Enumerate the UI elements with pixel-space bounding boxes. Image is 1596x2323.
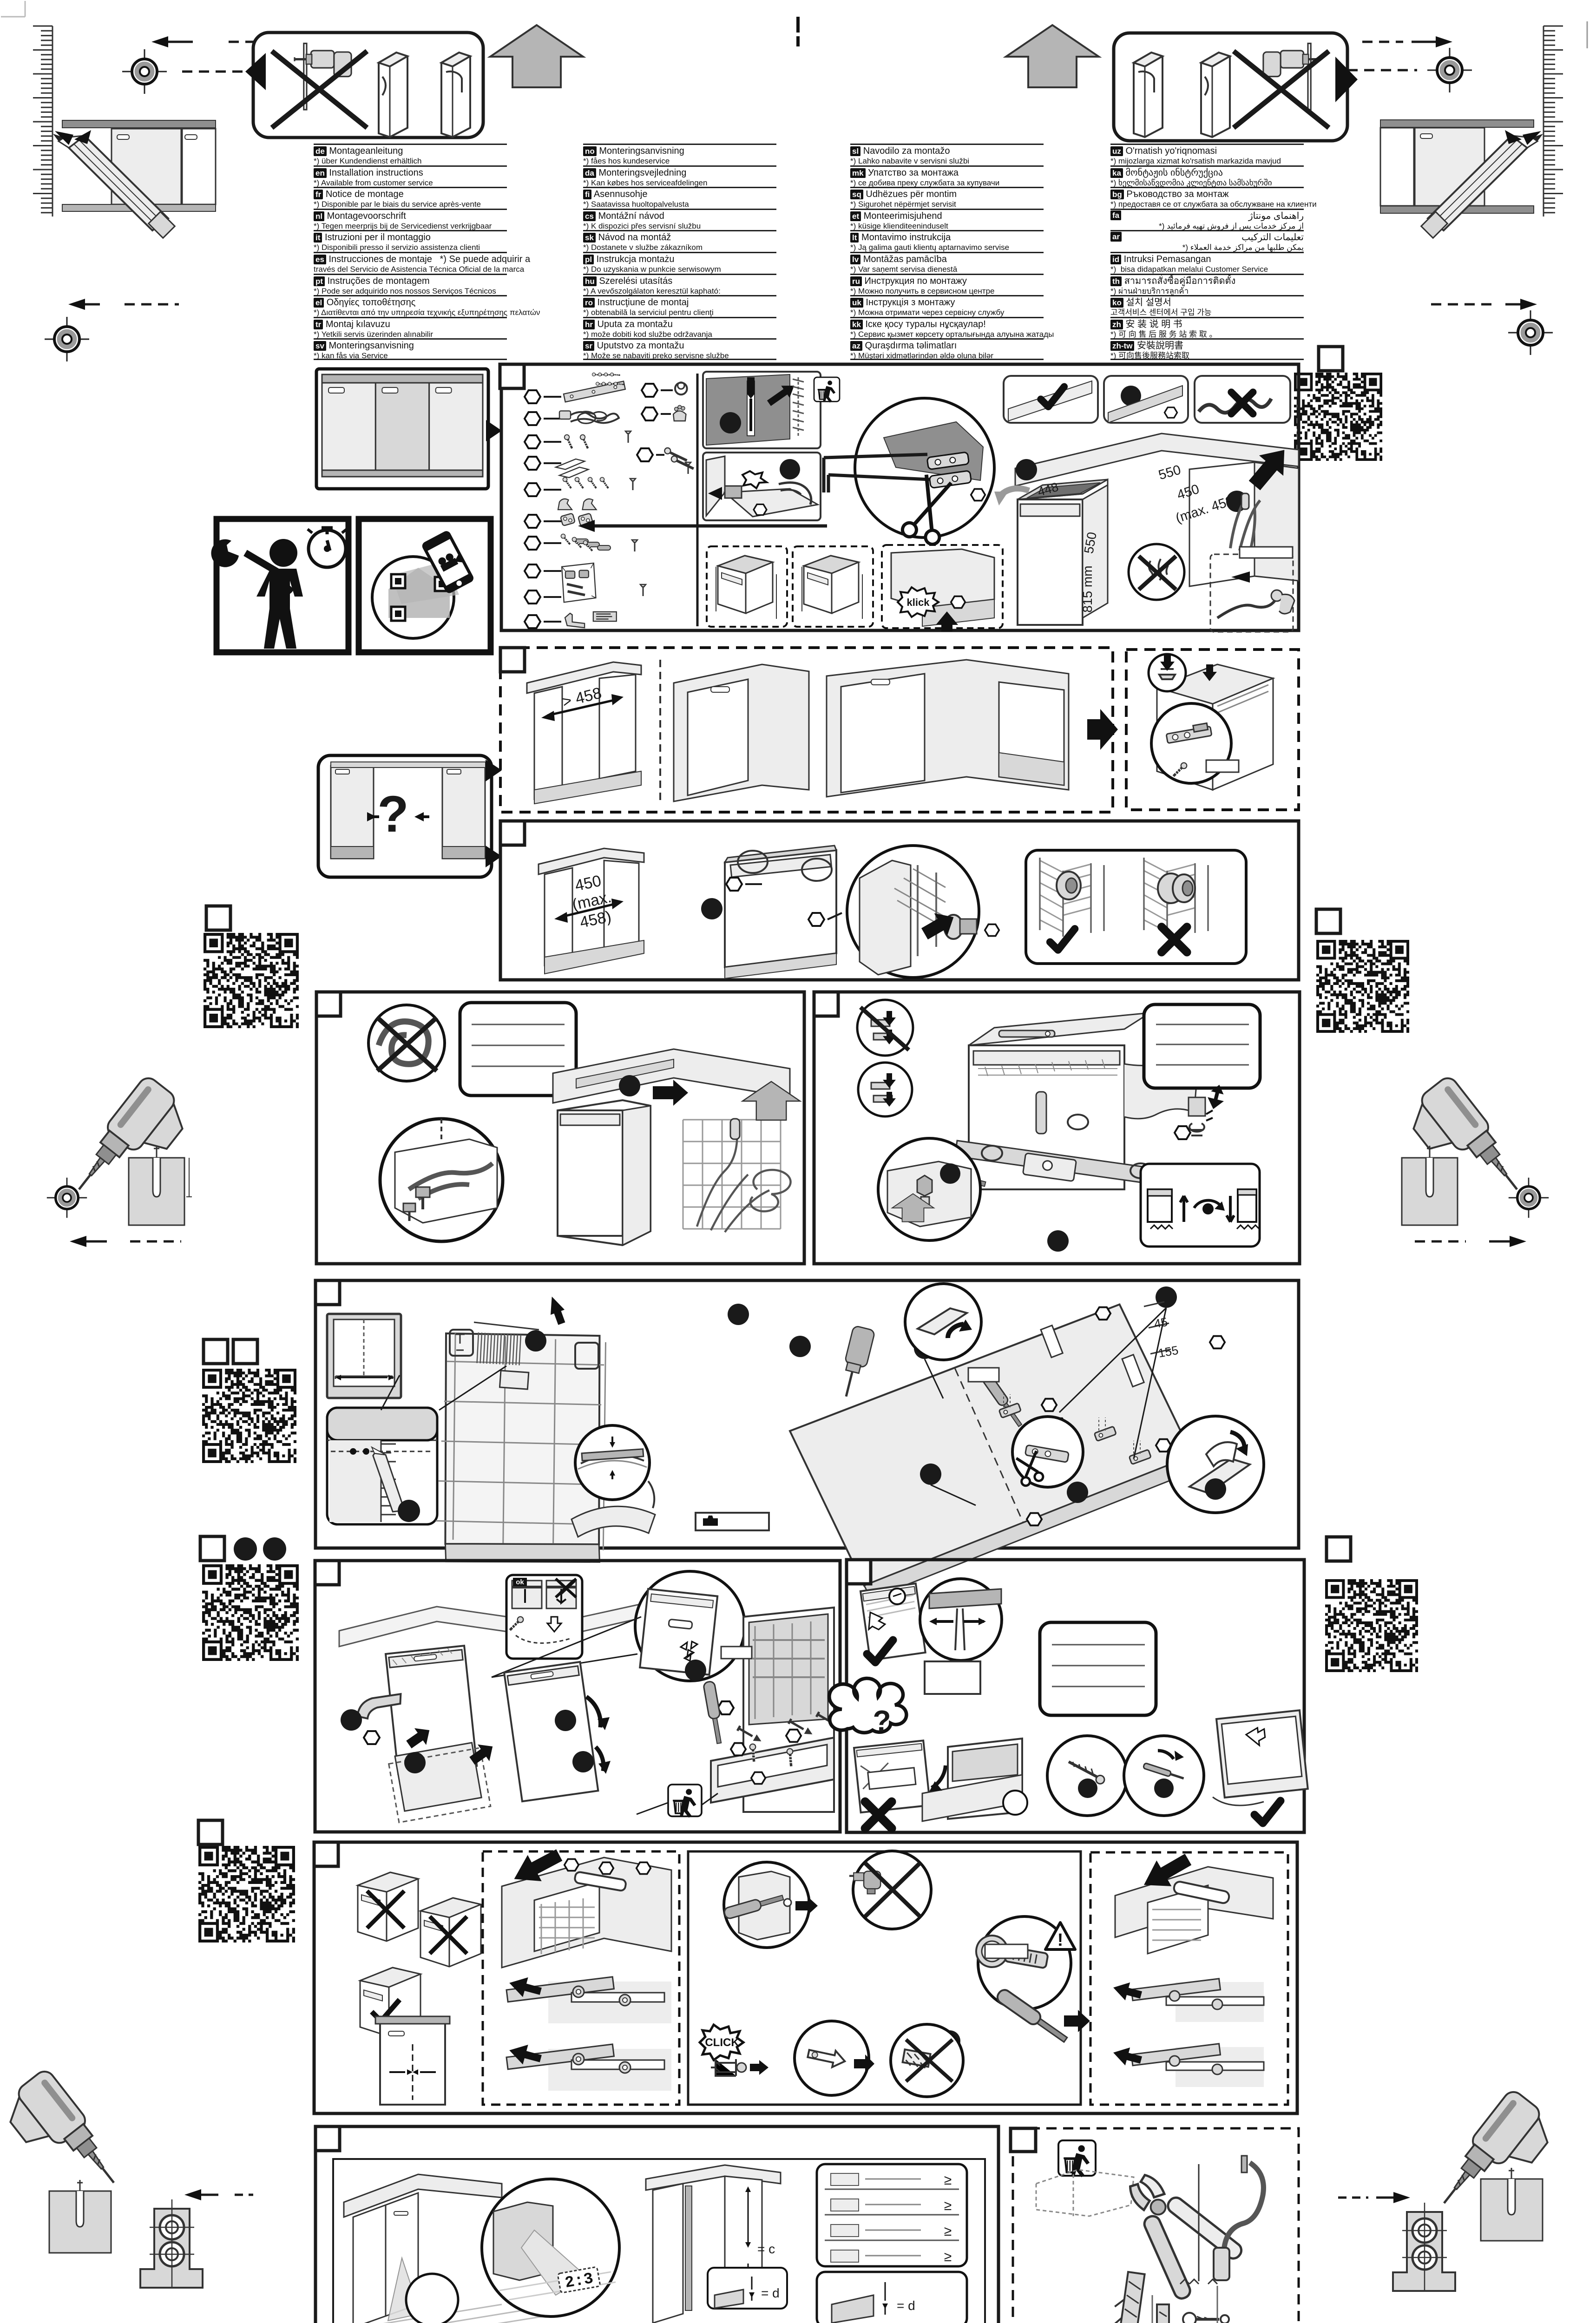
svg-text:= d: = d	[897, 2298, 915, 2313]
svg-text:ok: ok	[516, 1578, 524, 1586]
svg-text:≥: ≥	[944, 2249, 952, 2264]
svg-text:815 mm: 815 mm	[1080, 565, 1095, 612]
svg-text:≥: ≥	[944, 2224, 952, 2239]
svg-text:CLICK: CLICK	[705, 2036, 739, 2049]
svg-text:?: ?	[873, 1704, 891, 1738]
svg-text:= c: = c	[757, 2242, 775, 2256]
svg-text:155: 155	[1157, 1343, 1179, 1360]
svg-text:≥: ≥	[944, 2172, 952, 2188]
svg-text:≥: ≥	[944, 2198, 952, 2213]
svg-text:?: ?	[377, 786, 408, 843]
svg-text:45: 45	[1153, 1315, 1169, 1331]
svg-text:= d: = d	[761, 2286, 780, 2300]
svg-text:550: 550	[1157, 462, 1182, 483]
